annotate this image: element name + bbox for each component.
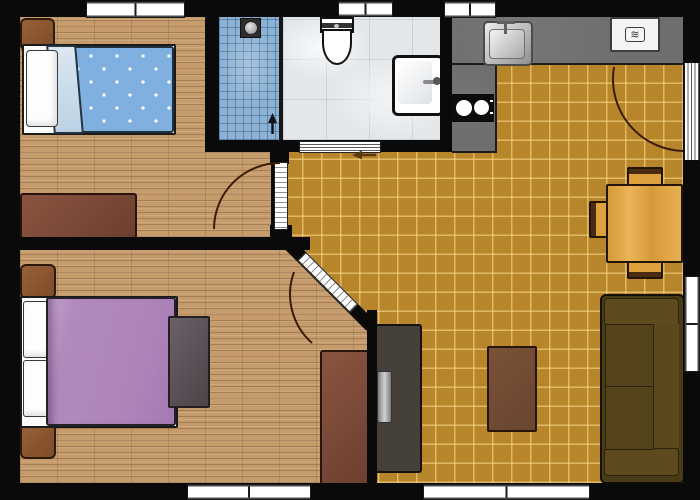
microwave-icon: ≋ <box>625 27 644 42</box>
bed-1 <box>22 44 176 135</box>
shower-partition <box>279 17 283 140</box>
dining-table <box>606 184 683 263</box>
toilet-flush-button <box>334 24 339 28</box>
microwave: ≋ <box>610 17 660 52</box>
wardrobe <box>320 350 372 485</box>
cooktop-knob <box>490 112 493 114</box>
window <box>187 484 311 500</box>
sofa-backrest <box>652 324 679 448</box>
kitchen-sink <box>483 21 533 66</box>
bathroom-sliding-door <box>299 141 381 153</box>
terrace-door <box>684 61 700 162</box>
shower-drain <box>240 18 261 38</box>
bedroom-1-door-leaf <box>274 162 288 230</box>
floor-plan: ≋ <box>0 0 700 500</box>
window <box>338 1 393 17</box>
wall <box>367 310 377 487</box>
sofa-cushion <box>605 324 654 387</box>
sofa-armrest <box>604 448 679 476</box>
faucet-icon <box>497 21 515 24</box>
coffee-table <box>487 346 537 432</box>
toilet <box>320 17 354 64</box>
bedroom-1-alcove-floor <box>205 152 271 237</box>
wall <box>0 483 700 500</box>
wall <box>0 0 20 500</box>
nightstand <box>20 264 56 299</box>
toilet-bowl <box>322 29 352 65</box>
tv <box>377 371 392 423</box>
cooktop-knob <box>490 100 493 102</box>
wall <box>440 0 452 152</box>
burner-icon <box>456 100 472 116</box>
shower-head-icon <box>244 21 258 35</box>
sofa <box>600 294 685 484</box>
bed-1-pillow <box>26 50 58 127</box>
washbasin <box>392 55 444 116</box>
wall <box>20 237 310 250</box>
bed-2-duvet <box>46 297 176 426</box>
dresser <box>20 193 137 239</box>
sofa-armrest <box>604 298 679 326</box>
window <box>684 276 700 372</box>
window <box>444 1 496 18</box>
sofa-cushion <box>605 386 654 450</box>
sink-basin <box>489 29 525 59</box>
window <box>423 484 590 500</box>
window <box>86 1 185 18</box>
wall <box>205 0 219 152</box>
gray-dresser <box>168 316 210 408</box>
cooktop <box>452 94 494 122</box>
bed-2 <box>20 296 178 428</box>
burner-icon <box>474 100 489 115</box>
